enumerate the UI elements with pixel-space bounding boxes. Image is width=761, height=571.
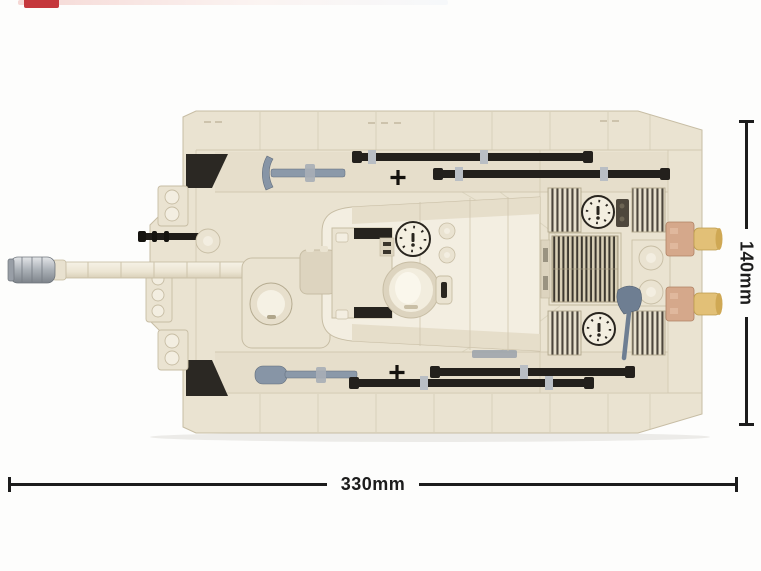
gun-mantlet (300, 246, 336, 294)
casemate (300, 197, 540, 351)
dimension-line (745, 317, 748, 423)
dimension-line (419, 483, 735, 486)
fan-dial (582, 196, 614, 228)
engine-grille (548, 188, 581, 232)
clip-plate (472, 350, 517, 358)
mg-barrel (143, 233, 201, 240)
connector-block (616, 199, 629, 227)
height-dimension: 140mm (737, 120, 755, 426)
engine-grille (632, 188, 665, 232)
dimension-endcap (735, 477, 738, 492)
height-dimension-label: 140mm (736, 229, 757, 318)
width-dimension-label: 330mm (327, 474, 420, 495)
width-dimension: 330mm (8, 475, 738, 493)
dimension-endcap (739, 423, 754, 426)
engine-grille (632, 311, 665, 355)
muzzle-brake (8, 257, 55, 283)
product-image: 330mm 140mm (0, 0, 761, 571)
dial-hatch (396, 222, 430, 256)
fan-dial (583, 313, 615, 345)
dimension-line (745, 123, 748, 229)
exhaust-pipe (666, 222, 723, 256)
exhaust-pipe (666, 287, 723, 321)
engine-grille (548, 311, 581, 355)
dimension-line (11, 483, 327, 486)
